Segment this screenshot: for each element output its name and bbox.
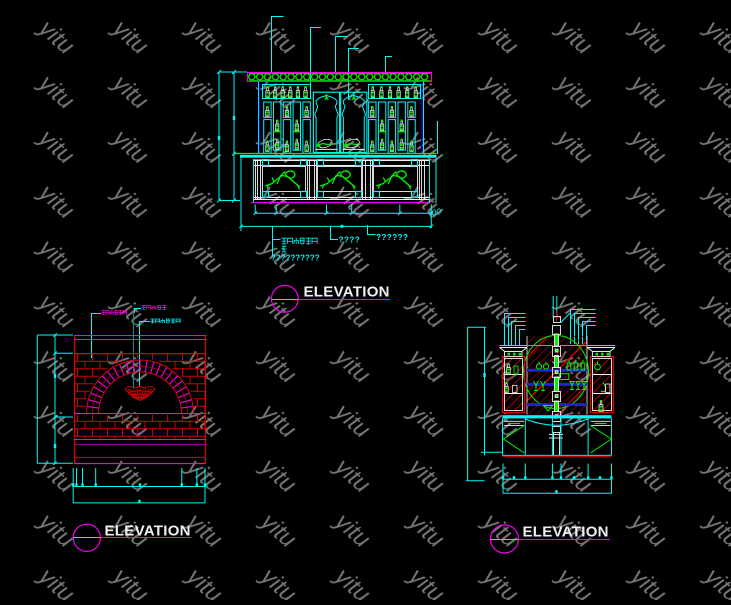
svg-text:ELEVATION: ELEVATION (304, 284, 390, 301)
svg-text:??????: ?????? (376, 233, 408, 242)
svg-text:??????????: ?????????? (271, 254, 320, 263)
svg-text:ELEVATION: ELEVATION (523, 524, 609, 541)
svg-text:????: ???? (339, 236, 361, 245)
svg-text:ELEVATION: ELEVATION (105, 523, 191, 540)
